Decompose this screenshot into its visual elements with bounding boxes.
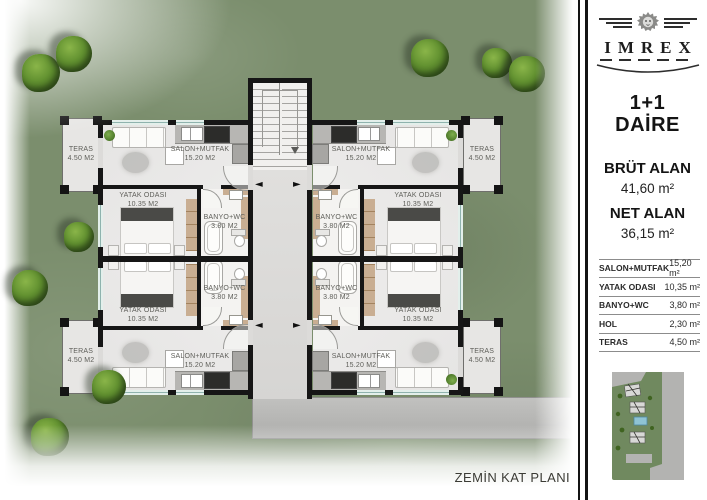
kitchen-sink [358,374,380,388]
wall [307,78,312,399]
table-row: YATAK ODASI10,35 m² [599,278,700,297]
room-area: 3.80 M2 [313,222,360,231]
row-label: TERAS [599,337,628,347]
bedroom-label: YATAK ODASI10.35 M2 [103,306,183,324]
column [60,387,69,396]
bathroom-sink [229,190,243,200]
nightstand [442,245,453,256]
column [60,318,69,327]
area-summary: BRÜT ALAN 41,60 m² NET ALAN 36,15 m² [588,160,707,241]
terrace-door [458,347,463,377]
room-name: BANYO+WC [201,213,248,222]
floor-plan-sheet: TERAS4.50 M2 TERAS4.50 M2 TERAS4.50 M2 T… [0,0,707,500]
bathroom-sink [229,315,243,325]
living-room-label: SALON+MUTFAK15.20 M2 [160,352,240,370]
bathroom-sink [318,190,332,200]
terrace-bottom-right: TERAS4.50 M2 [463,320,501,394]
terrace-label: TERAS4.50 M2 [63,347,99,365]
table-row: BANYO+WC3,80 m² [599,297,700,316]
rug [412,152,439,173]
net-area-label: NET ALAN [588,205,707,222]
row-label: BANYO+WC [599,300,649,310]
kitchen-sink [181,374,203,388]
brand-name: IMREX [588,38,707,58]
wall [312,256,463,262]
site-plan-thumbnail [612,372,684,480]
room-area: 10.35 M2 [103,315,183,324]
row-value: 4,50 m² [669,337,700,347]
brand-logo: IMREX [588,0,707,78]
column [494,318,503,327]
room-area: 3.80 M2 [313,293,360,302]
bathroom-sink [318,315,332,325]
unit-line1: 1+1 [588,92,707,114]
room-area: 15.20 M2 [160,361,240,370]
rug [122,342,149,363]
room-area: 15.20 M2 [321,154,401,163]
bedroom-label: YATAK ODASI10.35 M2 [378,191,458,209]
wardrobe [364,264,375,316]
window [357,120,385,125]
logo-underline [600,59,695,61]
wall [358,185,458,189]
bed [120,207,174,257]
wall [358,326,458,330]
column [60,185,69,194]
white-fade [0,425,578,500]
corridor [253,170,307,399]
room-name: YATAK ODASI [103,191,183,200]
window [98,268,103,310]
panel-border [578,0,580,500]
net-area-value: 36,15 m² [588,226,707,241]
plan-title: ZEMİN KAT PLANI [372,470,570,485]
room-areas-table: SALON+MUTFAK15,20 m² YATAK ODASI10,35 m²… [599,259,700,353]
window [176,390,204,395]
entry-door-opening [307,320,312,345]
room-name: BANYO+WC [313,284,360,293]
window [393,390,449,395]
terrace-label: TERAS4.50 M2 [464,347,500,365]
plant [446,130,457,141]
room-name: SALON+MUTFAK [321,145,401,154]
living-room-label: SALON+MUTFAK15.20 M2 [321,145,401,163]
unit-type: 1+1 DAİRE [588,92,707,136]
room-name: TERAS [464,347,500,356]
wall [103,185,203,189]
stove [331,126,357,143]
room-name: BANYO+WC [313,213,360,222]
plant [446,374,457,385]
table-row: SALON+MUTFAK15,20 m² [599,260,700,279]
stove [331,372,357,389]
entry-arrow-icon: ► [293,321,301,331]
room-name: YATAK ODASI [103,306,183,315]
terrace-door [458,138,463,168]
table-row: HOL2,30 m² [599,315,700,334]
row-value: 2,30 m² [669,319,700,329]
sofa [395,367,449,388]
bathroom-label: BANYO+WC3.80 M2 [201,213,248,231]
logo-swoosh [594,63,702,78]
row-label: SALON+MUTFAK [599,263,669,273]
logo-lines [599,18,632,28]
bed [120,258,174,308]
wardrobe [186,199,197,251]
nightstand [376,245,387,256]
row-value: 15,20 m² [669,258,700,278]
terrace-label: TERAS4.50 M2 [464,145,500,163]
rug [412,342,439,363]
bed [387,207,441,257]
row-value: 3,80 m² [669,300,700,310]
row-value: 10,35 m² [664,282,700,292]
room-name: BANYO+WC [201,284,248,293]
unit-line2: DAİRE [588,114,707,136]
kitchen-sink [358,127,380,141]
room-area: 4.50 M2 [63,154,99,163]
window [458,268,463,310]
room-name: TERAS [464,145,500,154]
room-area: 3.80 M2 [201,222,248,231]
table-row: TERAS4,50 m² [599,334,700,353]
room-area: 15.20 M2 [160,154,240,163]
gross-area-label: BRÜT ALAN [588,160,707,177]
column [494,116,503,125]
rug [122,152,149,173]
entry-door-opening [307,165,312,190]
room-area: 10.35 M2 [378,315,458,324]
entry-door-opening [248,320,253,345]
apartment-top-right: SALON+MUTFAK15.20 M2 BANYO+WC3.80 M2 YAT… [313,125,458,256]
room-area: 4.50 M2 [63,356,99,365]
bathroom-label: BANYO+WC3.80 M2 [313,213,360,231]
window [393,120,449,125]
staircase [253,83,307,170]
wall [98,256,248,262]
wall [248,78,312,83]
room-area: 4.50 M2 [464,154,500,163]
white-fade [535,0,578,500]
living-room-label: SALON+MUTFAK15.20 M2 [321,352,401,370]
room-area: 10.35 M2 [378,200,458,209]
entry-arrow-icon: ► [293,180,301,190]
entry-arrow-icon: ◄ [255,321,263,331]
wardrobe [186,264,197,316]
sofa [395,127,449,148]
terrace-top-right: TERAS4.50 M2 [463,118,501,192]
bathroom-label: BANYO+WC3.80 M2 [313,284,360,302]
lion-crest-icon [636,12,660,34]
window [98,205,103,247]
entry-door-opening [248,165,253,190]
wall [103,326,203,330]
window [458,205,463,247]
room-name: YATAK ODASI [378,306,458,315]
wardrobe [364,199,375,251]
room-name: SALON+MUTFAK [160,352,240,361]
gross-area-value: 41,60 m² [588,181,707,196]
room-name: YATAK ODASI [378,191,458,200]
stove [204,372,230,389]
column [494,387,503,396]
logo-lines [664,18,697,28]
apartment-bottom-right: SALON+MUTFAK15.20 M2 BANYO+WC3.80 M2 YAT… [313,259,458,390]
stair-direction-icon [291,147,299,154]
bedroom-label: YATAK ODASI10.35 M2 [103,191,183,209]
column [494,185,503,194]
room-name: SALON+MUTFAK [321,352,401,361]
apartment-bottom-left: SALON+MUTFAK15.20 M2 BANYO+WC3.80 M2 YAT… [103,259,248,390]
info-panel: IMREX 1+1 DAİRE BRÜT ALAN 41,60 m² NET A… [578,0,707,500]
row-label: HOL [599,319,617,329]
room-area: 10.35 M2 [103,200,183,209]
bedroom-label: YATAK ODASI10.35 M2 [378,306,458,324]
room-area: 15.20 M2 [321,361,401,370]
stair-guide-line [262,90,298,147]
nightstand [108,245,119,256]
room-name: TERAS [63,347,99,356]
room-area: 3.80 M2 [201,293,248,302]
room-area: 4.50 M2 [464,356,500,365]
entry-arrow-icon: ◄ [255,180,263,190]
row-label: YATAK ODASI [599,282,656,292]
nightstand [174,245,185,256]
bed [387,258,441,308]
bathroom-label: BANYO+WC3.80 M2 [201,284,248,302]
window [357,390,385,395]
